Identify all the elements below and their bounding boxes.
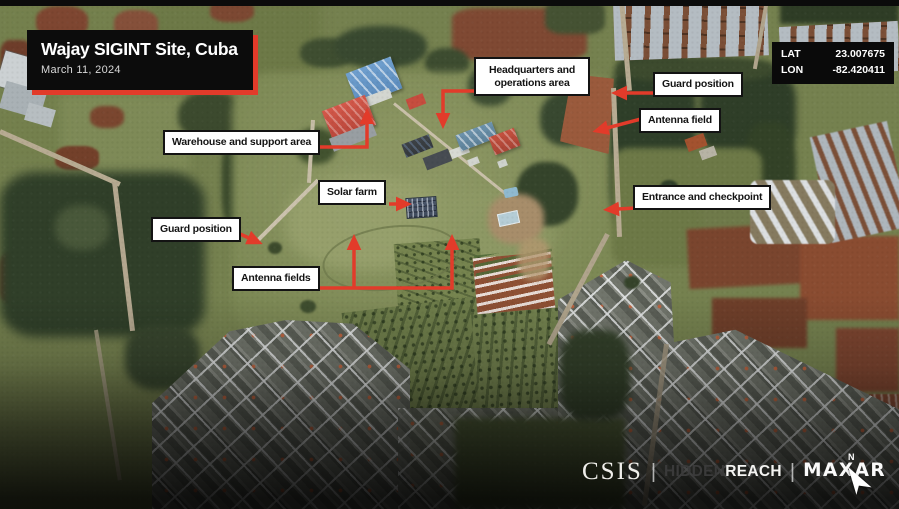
label-antenna-field: Antenna field <box>639 108 721 133</box>
terrain-patch <box>800 236 899 320</box>
terrain-patch <box>0 172 205 337</box>
hiddenreach-hidden-text: HIDDEN <box>664 463 725 480</box>
lon-value: -82.420411 <box>832 63 885 79</box>
terrain-patch <box>300 300 316 313</box>
north-arrow-icon <box>842 462 878 502</box>
label-antenna-fields: Antenna fields <box>232 266 320 291</box>
terrain-patch <box>90 106 124 128</box>
image-date: March 11, 2024 <box>41 64 239 76</box>
terrain-patch <box>94 330 122 481</box>
lat-value: 23.007675 <box>835 47 885 63</box>
logo-separator: | <box>651 462 656 482</box>
top-black-bar <box>0 0 899 6</box>
hiddenreach-logo: HIDDENREACH <box>664 464 782 480</box>
lat-label: LAT <box>781 47 801 63</box>
terrain-patch <box>836 328 899 392</box>
lon-label: LON <box>781 63 803 79</box>
coordinates-card: LAT 23.007675 LON -82.420411 <box>772 42 894 84</box>
logo-separator: | <box>790 462 795 482</box>
terrain-patch <box>624 276 640 289</box>
hiddenreach-reach-text: REACH <box>725 463 782 480</box>
label-entrance: Entrance and checkpoint <box>633 185 771 210</box>
label-guard-position-w: Guard position <box>151 217 241 242</box>
label-warehouse: Warehouse and support area <box>163 130 320 155</box>
csis-logo: CSIS <box>582 459 643 484</box>
terrain-patch <box>560 330 630 420</box>
page-title: Wajay SIGINT Site, Cuba <box>41 39 239 60</box>
annotated-satellite-graphic: Headquarters and operations area Guard p… <box>0 0 899 509</box>
terrain-patch <box>268 242 282 254</box>
north-label: N <box>848 452 855 462</box>
label-solar-farm: Solar farm <box>318 180 386 205</box>
terrain-patch <box>55 205 110 250</box>
label-headquarters: Headquarters and operations area <box>474 57 590 96</box>
north-indicator: N <box>840 450 888 506</box>
label-guard-position-ne: Guard position <box>653 72 743 97</box>
terrain-patch <box>518 238 550 280</box>
terrain-patch <box>613 0 769 61</box>
title-card: Wajay SIGINT Site, Cuba March 11, 2024 <box>27 30 253 90</box>
terrain-patch <box>405 196 437 219</box>
